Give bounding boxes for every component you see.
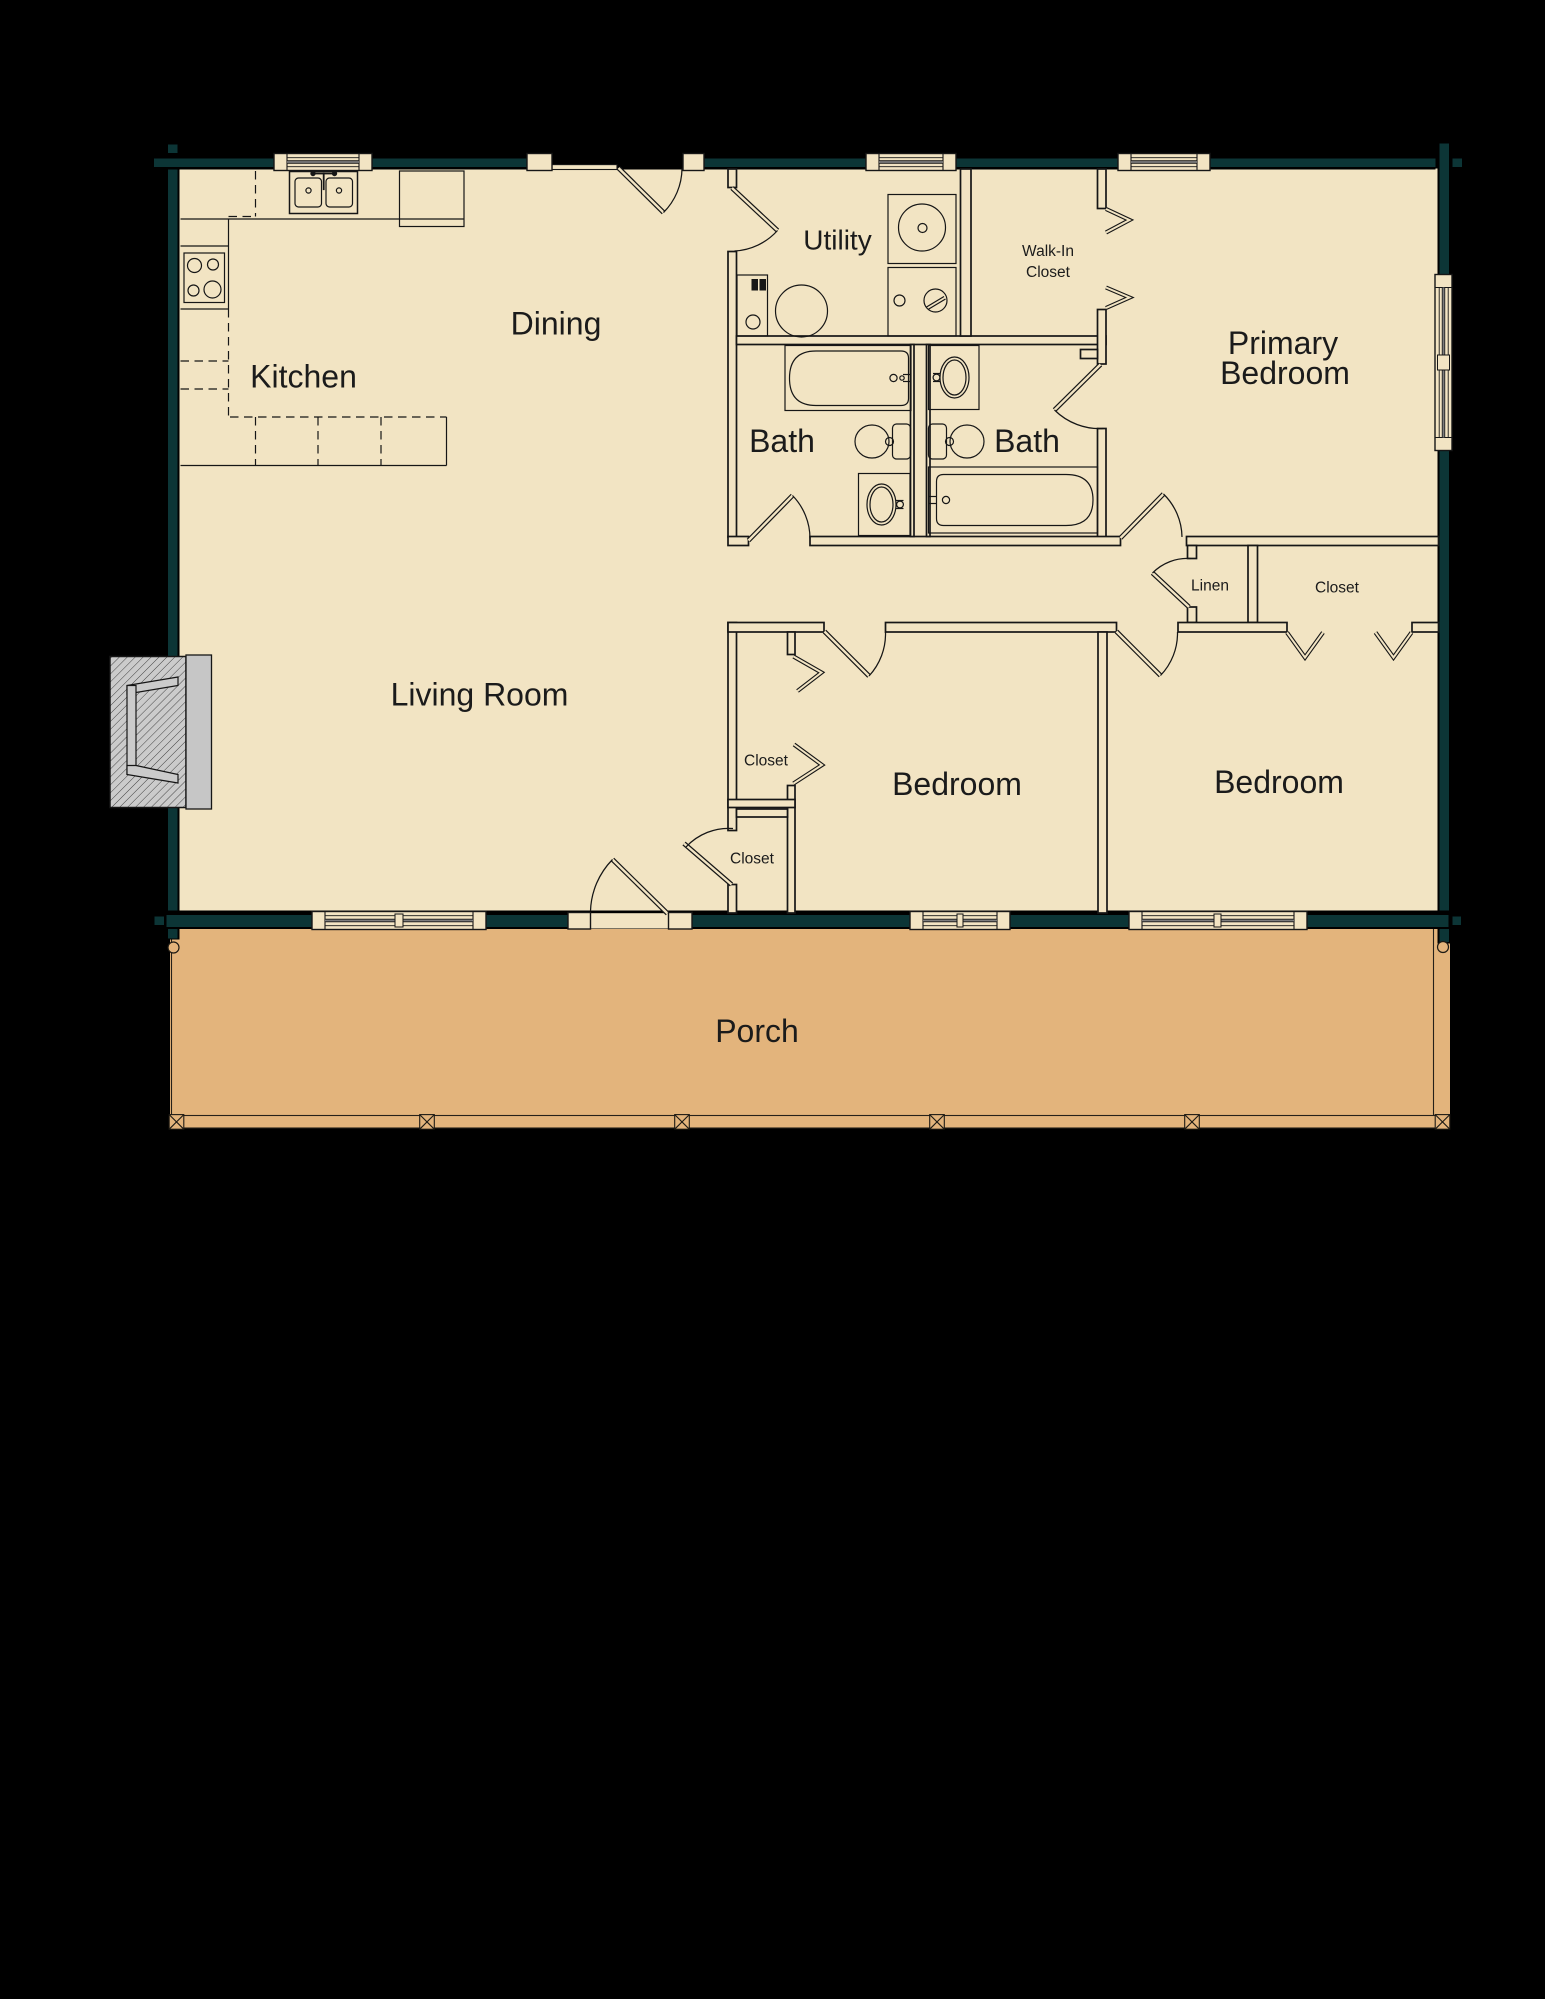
svg-text:Closet: Closet — [730, 851, 775, 868]
svg-text:Dining: Dining — [511, 306, 602, 342]
svg-text:Closet: Closet — [744, 753, 789, 770]
svg-text:Closet: Closet — [1315, 580, 1360, 597]
svg-text:Porch: Porch — [715, 1013, 799, 1049]
svg-text:Bedroom: Bedroom — [892, 766, 1022, 802]
svg-text:Closet: Closet — [1026, 264, 1071, 281]
svg-text:Utility: Utility — [803, 225, 871, 256]
svg-text:Living Room: Living Room — [391, 677, 569, 713]
svg-text:Bath: Bath — [994, 423, 1060, 459]
svg-text:Bedroom: Bedroom — [1214, 764, 1344, 800]
svg-text:Walk-In: Walk-In — [1022, 243, 1074, 260]
svg-text:Kitchen: Kitchen — [250, 359, 357, 395]
svg-text:Bath: Bath — [749, 423, 815, 459]
svg-text:Linen: Linen — [1191, 578, 1229, 595]
svg-text:Bedroom: Bedroom — [1220, 355, 1350, 391]
